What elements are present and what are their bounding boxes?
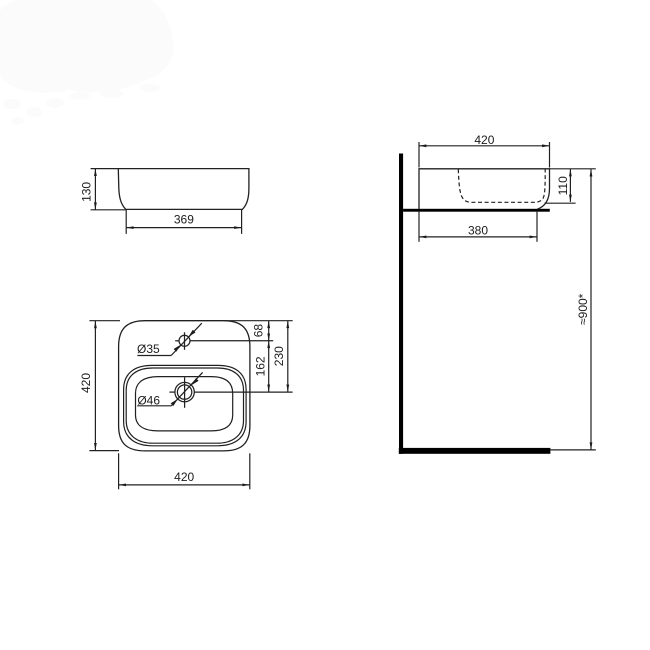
svg-text:Ø35: Ø35 [137, 342, 160, 356]
svg-text:420: 420 [174, 470, 194, 484]
svg-text:162: 162 [253, 356, 267, 376]
svg-text:≈900*: ≈900* [576, 293, 590, 325]
svg-text:110: 110 [556, 176, 570, 195]
svg-text:380: 380 [468, 224, 488, 238]
svg-text:420: 420 [79, 373, 93, 393]
svg-text:130: 130 [79, 182, 93, 202]
svg-text:68: 68 [252, 324, 266, 338]
svg-text:369: 369 [174, 213, 194, 227]
svg-text:420: 420 [474, 133, 494, 147]
svg-text:230: 230 [272, 346, 286, 366]
